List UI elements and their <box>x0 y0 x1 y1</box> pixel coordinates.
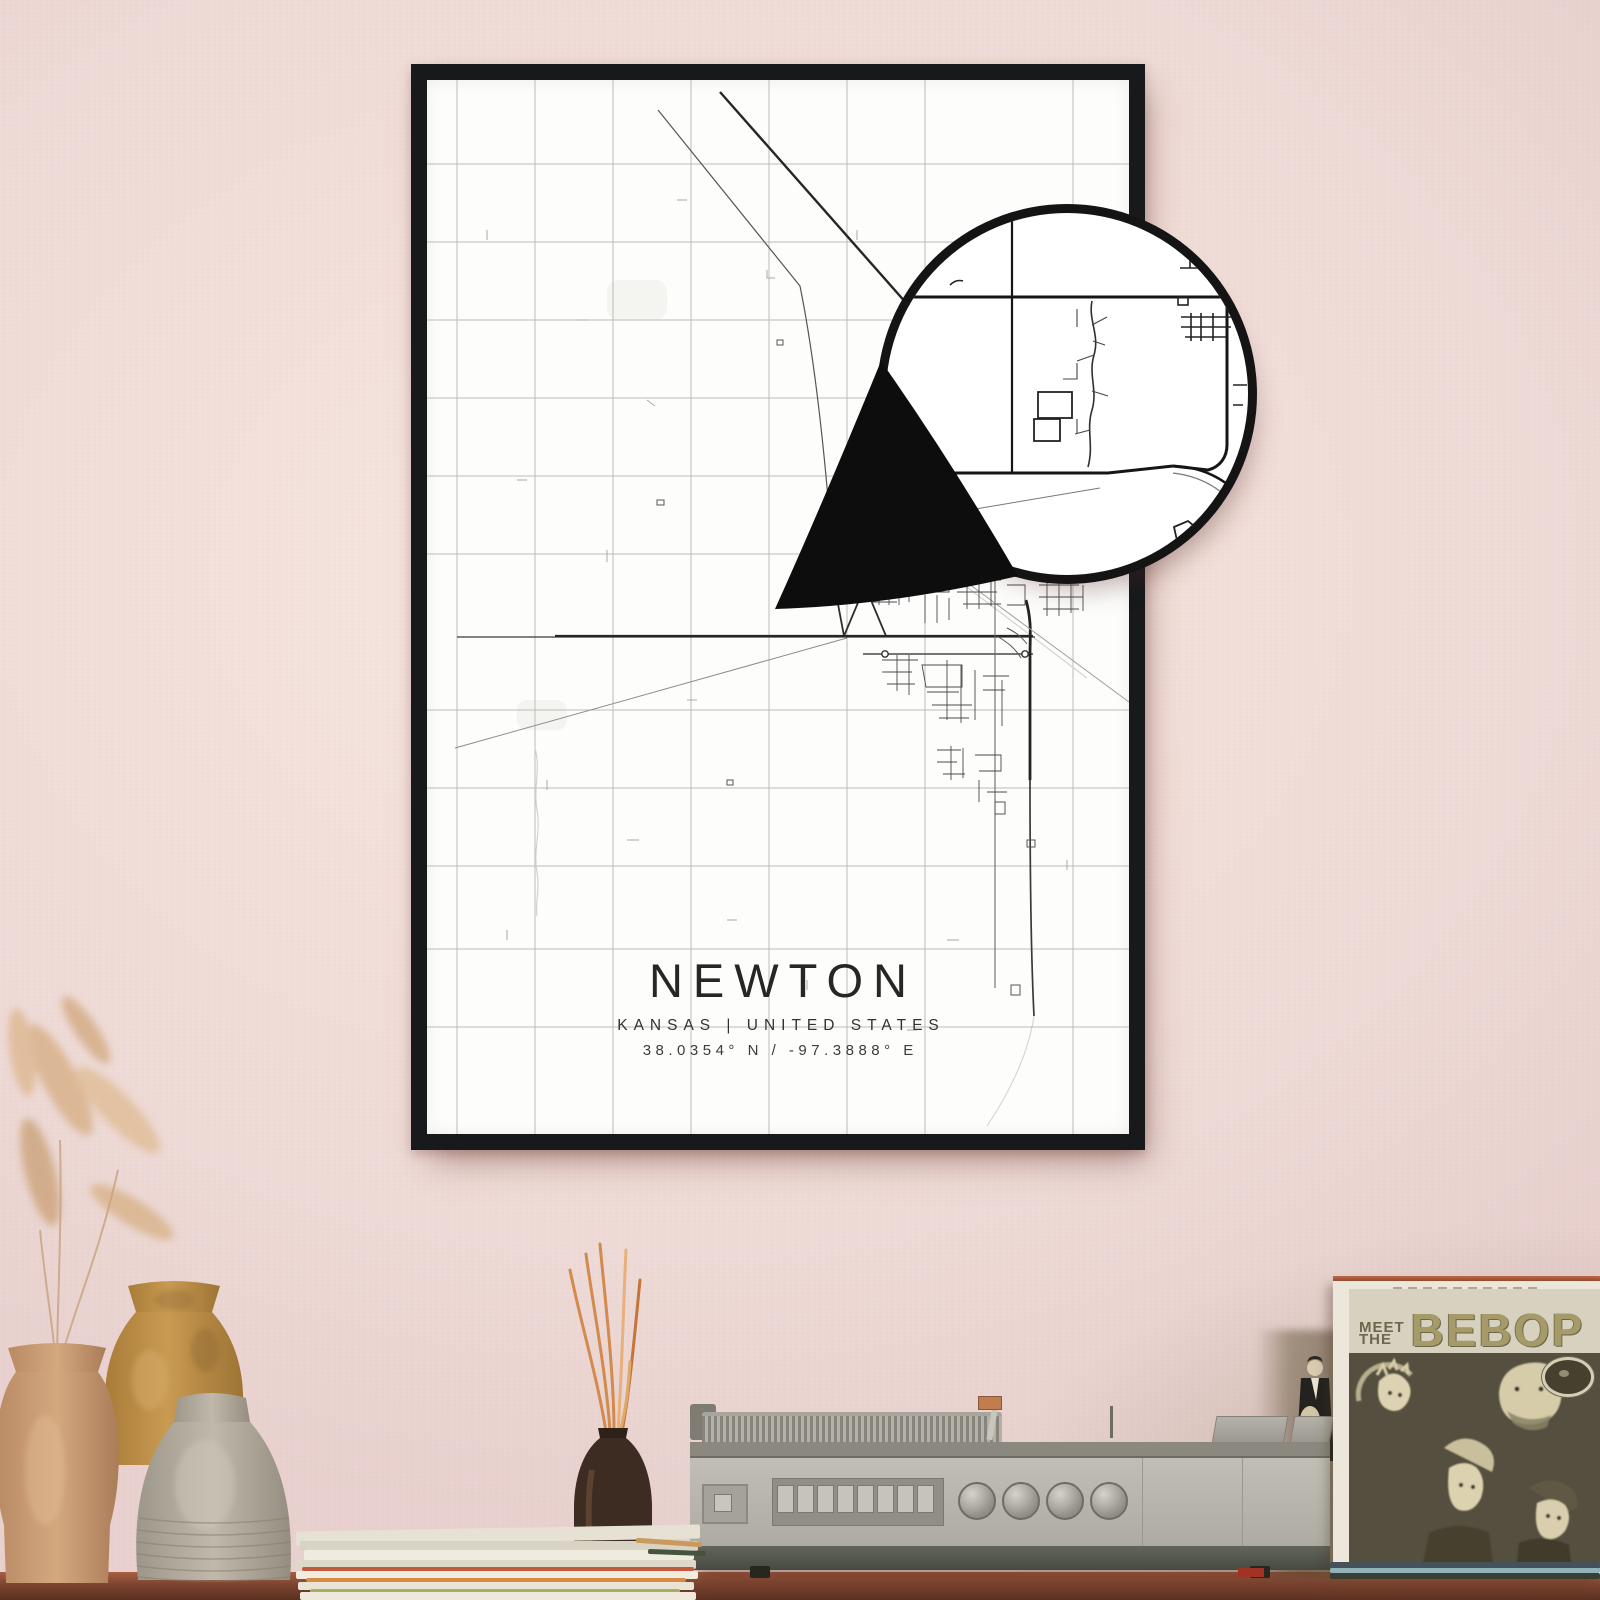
magazine <box>300 1592 696 1600</box>
tuner-knob <box>1002 1482 1040 1520</box>
preset-button-row <box>772 1478 944 1526</box>
vase-tan <box>0 1343 119 1583</box>
preset-button <box>777 1485 794 1513</box>
preset-button <box>857 1485 874 1513</box>
faceplate-seam <box>1142 1458 1143 1546</box>
flat-record-sleeves <box>1330 1560 1600 1582</box>
bass-knob <box>1046 1482 1084 1520</box>
player-deck <box>690 1442 1330 1458</box>
poster-subtitle: KANSAS | UNITED STATES <box>427 1017 1129 1035</box>
tonearm-headshell <box>978 1396 1002 1410</box>
album-title-band: MEET THE BEBOP <box>1349 1289 1600 1353</box>
volume-knob <box>958 1482 996 1520</box>
poster-text-block: NEWTON KANSAS | UNITED STATES 38.0354° N… <box>427 953 1129 1059</box>
magazine-stack <box>296 1526 704 1596</box>
power-button <box>702 1484 748 1524</box>
antenna <box>1110 1406 1113 1438</box>
preset-button <box>797 1485 814 1513</box>
poster-title: NEWTON <box>427 953 1129 1008</box>
magazine <box>304 1550 694 1560</box>
preset-button <box>837 1485 854 1513</box>
faceplate-seam <box>1242 1458 1243 1546</box>
record-sleeve-edge <box>1330 1573 1600 1579</box>
record-player <box>690 1396 1330 1584</box>
record-label-badge <box>1542 1357 1594 1397</box>
cable-clip <box>1238 1568 1264 1577</box>
player-faceplate <box>690 1458 1330 1546</box>
rear-lid-left <box>1212 1416 1289 1444</box>
player-base <box>690 1546 1330 1570</box>
poster-coordinates: 38.0354° N / -97.3888° E <box>427 1042 1129 1059</box>
preset-button <box>877 1485 894 1513</box>
magnified-map-detail <box>886 213 1248 575</box>
preset-button <box>897 1485 914 1513</box>
preset-button <box>817 1485 834 1513</box>
turntable-platter-ridge <box>702 1412 1002 1444</box>
ceramic-vases <box>0 1270 320 1600</box>
preset-button <box>917 1485 934 1513</box>
album-title-main: BEBOP <box>1411 1310 1585 1350</box>
magnifier-circle <box>886 213 1248 575</box>
rear-lid-right <box>1290 1416 1335 1444</box>
treble-knob <box>1090 1482 1128 1520</box>
player-foot <box>750 1566 770 1578</box>
album-title-prefix: MEET THE <box>1359 1322 1405 1346</box>
room-scene: NEWTON KANSAS | UNITED STATES 38.0354° N… <box>0 0 1600 1600</box>
bebop-album: MEET THE BEBOP <box>1333 1281 1600 1577</box>
